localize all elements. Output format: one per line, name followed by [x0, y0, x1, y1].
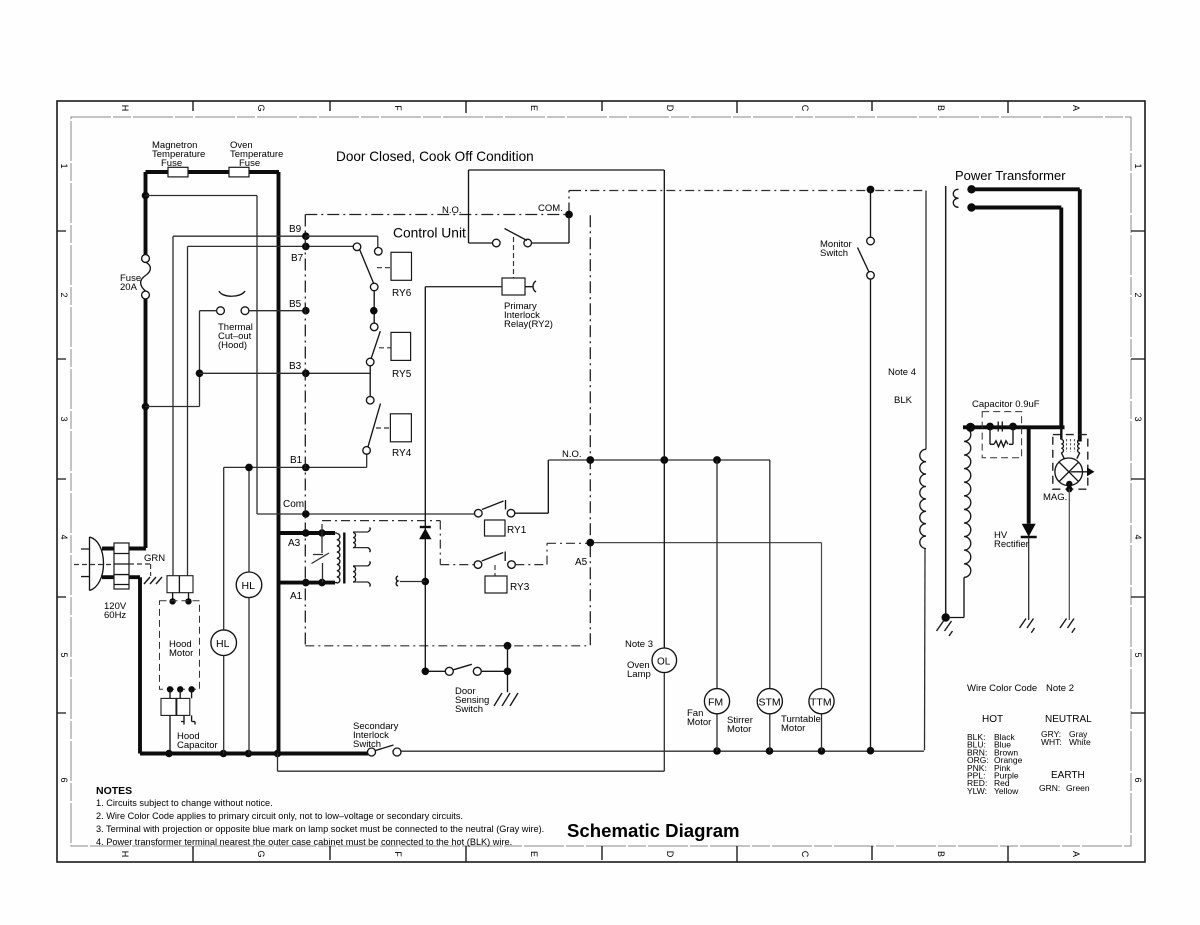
svg-text:Rectifier: Rectifier — [994, 539, 1029, 550]
svg-text:H: H — [120, 851, 130, 858]
svg-text:B: B — [936, 105, 946, 111]
svg-text:6: 6 — [59, 777, 69, 782]
svg-text:2: 2 — [59, 292, 69, 297]
svg-text:E: E — [529, 105, 539, 111]
svg-text:Fuse: Fuse — [239, 158, 260, 169]
svg-text:60Hz: 60Hz — [104, 610, 126, 621]
svg-text:RY5: RY5 — [392, 369, 412, 380]
svg-text:GRN:: GRN: — [1039, 783, 1060, 793]
svg-text:5: 5 — [59, 652, 69, 657]
svg-text:EARTH: EARTH — [1051, 770, 1085, 781]
svg-text:HL: HL — [242, 580, 256, 592]
svg-text:Note 2: Note 2 — [1046, 683, 1074, 694]
svg-text:3. Terminal with projection or: 3. Terminal with projection or opposite … — [96, 824, 544, 834]
svg-text:C: C — [800, 851, 810, 858]
svg-text:B1: B1 — [290, 455, 303, 466]
svg-text:HOT: HOT — [982, 714, 1003, 725]
svg-text:OL: OL — [657, 657, 671, 668]
svg-text:1: 1 — [1133, 163, 1143, 168]
svg-text:B7: B7 — [291, 253, 304, 264]
svg-text:Power Transformer: Power Transformer — [955, 168, 1066, 183]
svg-text:B: B — [936, 851, 946, 857]
svg-text:A5: A5 — [575, 557, 588, 568]
svg-text:6: 6 — [1133, 777, 1143, 782]
svg-text:Note 4: Note 4 — [888, 367, 916, 378]
svg-text:4: 4 — [59, 534, 69, 539]
svg-text:Capacitor: Capacitor — [177, 740, 218, 751]
svg-text:20A: 20A — [120, 282, 138, 293]
svg-text:RY1: RY1 — [507, 525, 527, 536]
svg-text:YLW:: YLW: — [967, 786, 987, 796]
svg-text:E: E — [529, 851, 539, 857]
svg-text:H: H — [120, 105, 130, 112]
svg-text:C: C — [800, 105, 810, 112]
svg-text:Fuse: Fuse — [161, 158, 182, 169]
svg-text:Switch: Switch — [353, 739, 381, 750]
svg-text:(Hood): (Hood) — [218, 340, 247, 351]
svg-text:B9: B9 — [289, 224, 302, 235]
svg-text:NEUTRAL: NEUTRAL — [1045, 714, 1092, 725]
svg-text:BLK: BLK — [894, 395, 913, 406]
svg-text:2. Wire Color Code applies to: 2. Wire Color Code applies to primary ci… — [96, 811, 463, 821]
svg-text:Motor: Motor — [687, 717, 711, 728]
svg-text:1: 1 — [59, 163, 69, 168]
svg-text:Note 3: Note 3 — [625, 639, 653, 650]
svg-text:D: D — [665, 105, 675, 112]
svg-text:5: 5 — [1133, 652, 1143, 657]
svg-text:2: 2 — [1133, 292, 1143, 297]
svg-text:Yellow: Yellow — [994, 786, 1019, 796]
svg-text:D: D — [665, 851, 675, 858]
svg-text:Green: Green — [1066, 783, 1090, 793]
svg-text:FM: FM — [708, 697, 723, 709]
svg-text:Relay(RY2): Relay(RY2) — [504, 319, 553, 330]
svg-text:NOTES: NOTES — [96, 785, 132, 797]
svg-text:4. Power transformer terminal: 4. Power transformer terminal nearest th… — [96, 837, 512, 847]
svg-text:F: F — [393, 851, 403, 857]
svg-text:N.O.: N.O. — [562, 449, 582, 460]
svg-text:Capacitor 0.9uF: Capacitor 0.9uF — [972, 399, 1040, 410]
svg-text:F: F — [393, 105, 403, 111]
svg-text:Schematic Diagram: Schematic Diagram — [567, 820, 740, 841]
svg-text:Control Unit: Control Unit — [393, 226, 466, 241]
svg-text:G: G — [256, 104, 266, 111]
svg-text:3: 3 — [1133, 416, 1143, 421]
svg-text:Wire Color Code: Wire Color Code — [967, 683, 1037, 694]
svg-text:RY4: RY4 — [392, 448, 412, 459]
svg-text:3: 3 — [59, 416, 69, 421]
svg-text:Motor: Motor — [727, 724, 751, 735]
svg-text:Com: Com — [283, 499, 304, 510]
svg-text:A: A — [1071, 851, 1081, 857]
svg-text:Door Closed, Cook Off Conditio: Door Closed, Cook Off Condition — [336, 149, 534, 164]
svg-text:RY3: RY3 — [510, 582, 530, 593]
svg-text:B3: B3 — [289, 361, 302, 372]
svg-text:A: A — [1071, 105, 1081, 111]
svg-text:COM.: COM. — [538, 203, 563, 214]
svg-text:Lamp: Lamp — [627, 669, 651, 680]
svg-text:Motor: Motor — [781, 723, 805, 734]
svg-text:Switch: Switch — [455, 704, 483, 715]
svg-text:N.O.: N.O. — [442, 205, 462, 216]
svg-text:White: White — [1069, 737, 1091, 747]
svg-text:A1: A1 — [290, 591, 303, 602]
svg-text:G: G — [256, 850, 266, 857]
svg-text:4: 4 — [1133, 534, 1143, 539]
svg-text:STM: STM — [759, 697, 781, 709]
svg-text:RY6: RY6 — [392, 288, 412, 299]
svg-text:Switch: Switch — [820, 248, 848, 259]
svg-text:B5: B5 — [289, 299, 302, 310]
svg-text:WHT:: WHT: — [1041, 737, 1062, 747]
svg-text:MAG.: MAG. — [1043, 492, 1067, 503]
svg-text:1. Circuits subject to change: 1. Circuits subject to change without no… — [96, 798, 273, 808]
svg-text:TTM: TTM — [810, 697, 832, 709]
svg-text:GRN: GRN — [144, 553, 165, 564]
svg-text:A3: A3 — [288, 538, 301, 549]
svg-text:HL: HL — [216, 638, 230, 650]
svg-text:Motor: Motor — [169, 648, 193, 659]
